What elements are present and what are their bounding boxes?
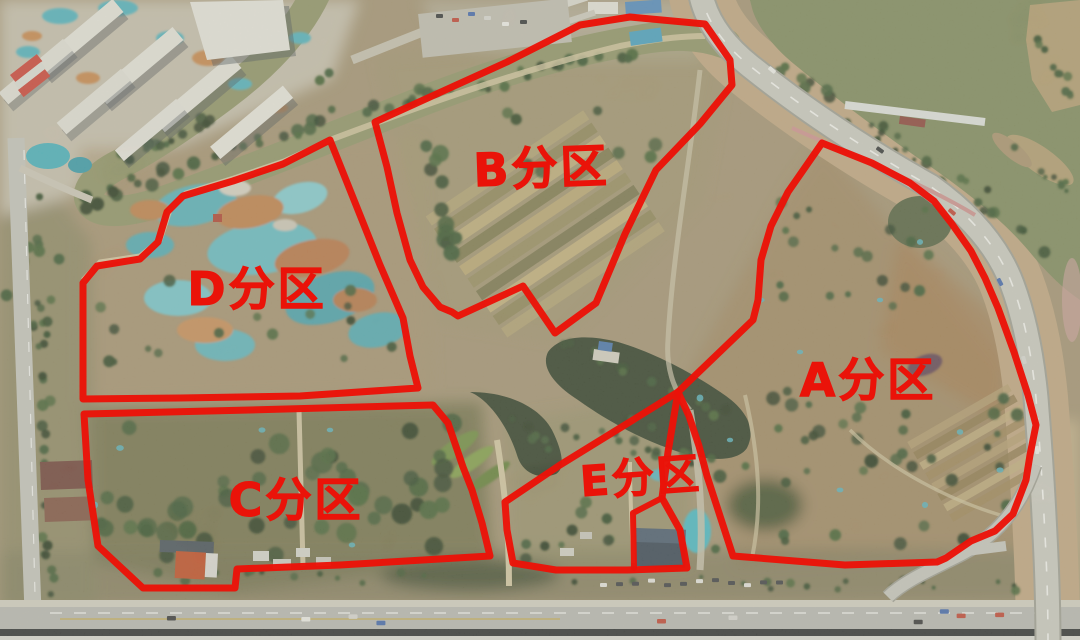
zone-E-label: E分区: [579, 449, 704, 506]
aerial-map: A分区B分区C分区D分区E分区: [0, 0, 1080, 640]
zone-C-label: C分区: [229, 473, 364, 527]
zone-A-label: A分区: [800, 353, 937, 407]
photo-grain: [0, 0, 1080, 640]
zone-B-label: B分区: [473, 139, 611, 198]
zone-D-label: D分区: [187, 262, 326, 316]
screenshot-root: A分区B分区C分区D分区E分区: [0, 0, 1080, 640]
